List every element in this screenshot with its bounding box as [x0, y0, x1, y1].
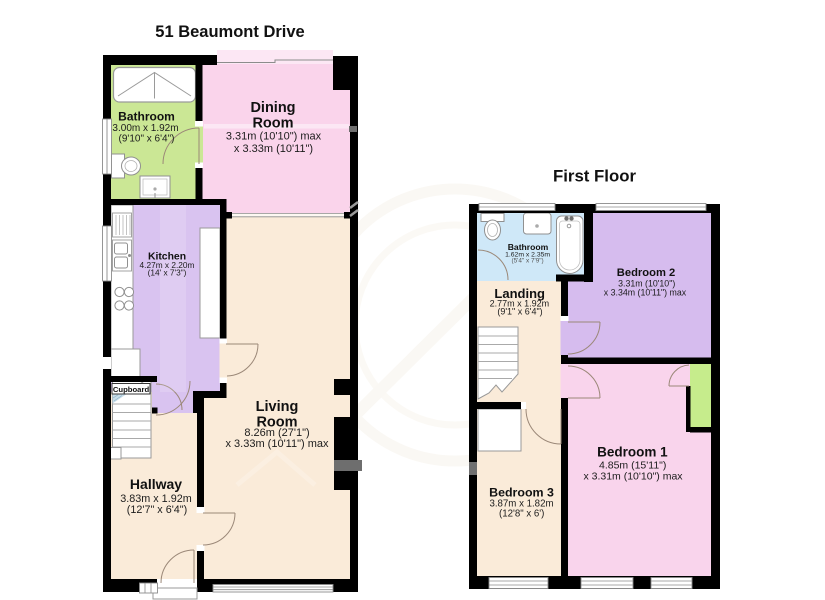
svg-text:Cupboard: Cupboard [113, 385, 150, 394]
svg-text:First Floor: First Floor [553, 167, 636, 186]
svg-text:Room: Room [252, 116, 293, 132]
svg-text:Hallway: Hallway [130, 476, 182, 492]
svg-text:51 Beaumont Drive: 51 Beaumont Drive [155, 23, 304, 41]
svg-text:3.00m x 1.92m: 3.00m x 1.92m [112, 123, 178, 134]
svg-text:x 3.33m (10'11"): x 3.33m (10'11") [234, 143, 313, 155]
svg-text:x 3.31m (10'10") max: x 3.31m (10'10") max [583, 471, 683, 483]
svg-text:Bedroom 2: Bedroom 2 [617, 267, 675, 279]
svg-text:(9'10" x 6'4"): (9'10" x 6'4") [119, 134, 175, 145]
svg-text:(9'1" x 6'4"): (9'1" x 6'4") [497, 307, 542, 317]
svg-text:x 3.33m (10'11") max: x 3.33m (10'11") max [225, 438, 329, 450]
svg-text:Bathroom: Bathroom [118, 110, 175, 124]
svg-text:Bedroom 3: Bedroom 3 [489, 485, 554, 499]
svg-text:x 3.34m (10'11") max: x 3.34m (10'11") max [604, 287, 687, 297]
svg-text:(12'7" x 6'4"): (12'7" x 6'4") [127, 504, 187, 516]
svg-text:(12'8" x 6'): (12'8" x 6') [499, 509, 544, 520]
svg-text:Living: Living [256, 399, 299, 415]
svg-text:Bedroom 1: Bedroom 1 [597, 445, 668, 460]
svg-text:(14' x 7'3"): (14' x 7'3") [148, 268, 187, 278]
svg-text:Dining: Dining [250, 100, 295, 116]
svg-text:3.31m (10'10") max: 3.31m (10'10") max [226, 131, 322, 143]
svg-text:(5'4" x 7'9"): (5'4" x 7'9") [511, 258, 543, 265]
